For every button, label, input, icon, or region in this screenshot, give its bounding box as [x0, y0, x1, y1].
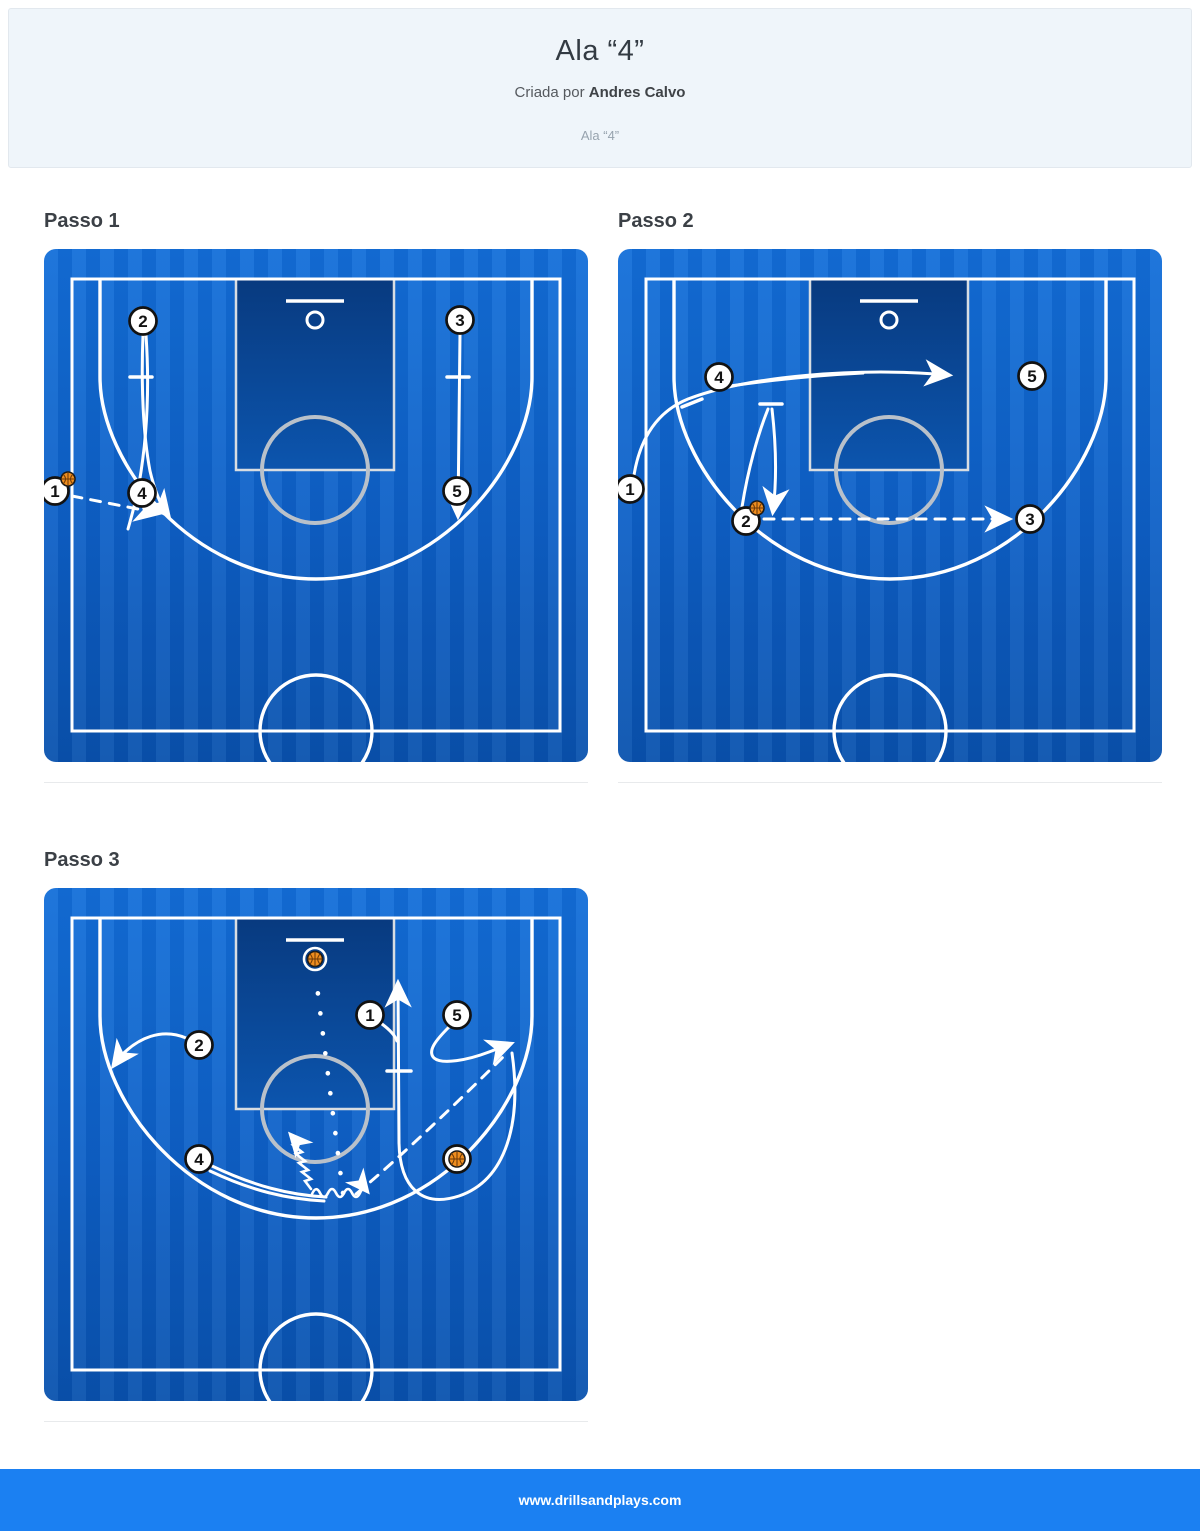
- divider: [44, 1421, 588, 1422]
- play-subtitle: Ala “4”: [19, 128, 1181, 143]
- player-marker-5: 5: [444, 478, 471, 505]
- svg-text:4: 4: [137, 484, 147, 503]
- author-name: Andres Calvo: [589, 84, 686, 101]
- svg-text:4: 4: [714, 368, 724, 387]
- main-content: Passo 1 2 3 1: [0, 168, 1200, 1422]
- svg-text:5: 5: [452, 482, 461, 501]
- court-diagram-passo-3: 1 5 2 4: [44, 888, 588, 1401]
- step-title-1: Passo 1: [44, 210, 588, 233]
- svg-text:1: 1: [50, 482, 59, 501]
- player-marker-2: 2: [130, 308, 157, 335]
- svg-text:3: 3: [455, 311, 464, 330]
- player-marker-1: 1: [618, 476, 644, 503]
- svg-text:2: 2: [194, 1036, 203, 1055]
- svg-text:3: 3: [1025, 510, 1034, 529]
- byline: Criada por Andres Calvo: [19, 84, 1181, 101]
- player-marker-4: 4: [129, 480, 156, 507]
- step-section-1: Passo 1 2 3 1: [44, 210, 588, 783]
- player-marker-5: 5: [1019, 363, 1046, 390]
- svg-text:2: 2: [741, 512, 750, 531]
- basketball-icon: [449, 1151, 465, 1167]
- divider: [618, 782, 1162, 783]
- basketball-icon: [61, 472, 75, 486]
- step-section-2: Passo 2 4 5 1: [618, 210, 1162, 783]
- rim-ball-icon: [308, 952, 323, 967]
- page-title: Ala “4”: [19, 35, 1181, 68]
- footer-url[interactable]: www.drillsandplays.com: [519, 1492, 682, 1508]
- page: Ala “4” Criada por Andres Calvo Ala “4” …: [0, 8, 1200, 1531]
- svg-text:2: 2: [138, 312, 147, 331]
- player-marker-5: 5: [444, 1002, 471, 1029]
- header: Ala “4” Criada por Andres Calvo Ala “4”: [8, 8, 1192, 168]
- player-marker-3: 3: [447, 307, 474, 334]
- made-basket-icon: [304, 948, 326, 970]
- court-diagram-passo-2: 4 5 1 2 3: [618, 249, 1162, 762]
- step-title-3: Passo 3: [44, 849, 588, 872]
- player-marker-3: 3: [1017, 506, 1044, 533]
- player-marker-4: 4: [186, 1146, 213, 1173]
- svg-text:5: 5: [452, 1006, 461, 1025]
- player-marker-1: 1: [357, 1002, 384, 1029]
- steps-row-1: Passo 1 2 3 1: [44, 210, 1162, 783]
- basketball-icon: [750, 501, 764, 515]
- step-title-2: Passo 2: [618, 210, 1162, 233]
- step-section-3: Passo 3 1 5: [44, 849, 588, 1422]
- steps-row-2: Passo 3 1 5: [44, 849, 1162, 1422]
- svg-text:1: 1: [365, 1006, 374, 1025]
- svg-text:5: 5: [1027, 367, 1036, 386]
- court-diagram-passo-1: 2 3 1 4 5: [44, 249, 588, 762]
- player-marker-2: 2: [186, 1032, 213, 1059]
- svg-text:4: 4: [194, 1150, 204, 1169]
- player-marker-4: 4: [706, 364, 733, 391]
- footer: www.drillsandplays.com: [0, 1469, 1200, 1531]
- svg-text:1: 1: [625, 480, 634, 499]
- byline-prefix: Criada por: [515, 84, 589, 101]
- divider: [44, 782, 588, 783]
